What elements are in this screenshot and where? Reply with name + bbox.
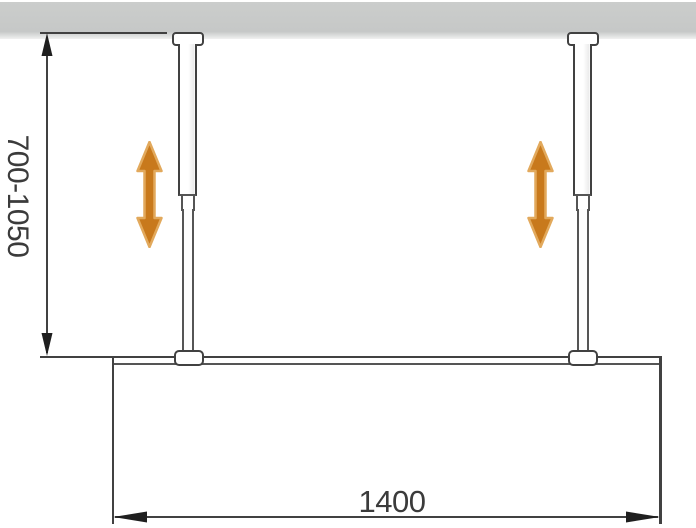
upper-tube [178, 44, 197, 196]
upper-tube [573, 44, 592, 196]
glass-right-edge [659, 356, 662, 524]
width-dim-arrowhead-right-icon [626, 511, 660, 523]
adjustable-height-arrow-right-icon [527, 141, 554, 248]
adjustable-height-arrow-left-icon [136, 141, 163, 248]
height-dimension-label: 700-1050 [2, 135, 32, 258]
height-dim-arrowhead-up-icon [40, 33, 54, 56]
width-dim-arrowhead-left-icon [113, 511, 147, 523]
height-dim-line [46, 38, 48, 353]
installation-diagram: 700-1050 1400 [0, 0, 696, 528]
width-dimension-label: 1400 [302, 486, 482, 517]
glass-left-edge [112, 356, 114, 524]
lower-rod [182, 209, 194, 352]
glass-clamp [174, 350, 204, 366]
height-dim-extension-line-top [40, 32, 167, 34]
glass-clamp [568, 350, 598, 366]
lower-rod [577, 209, 589, 352]
height-dim-arrowhead-down-icon [40, 333, 54, 356]
height-dim-extension-line-bottom [40, 356, 114, 358]
